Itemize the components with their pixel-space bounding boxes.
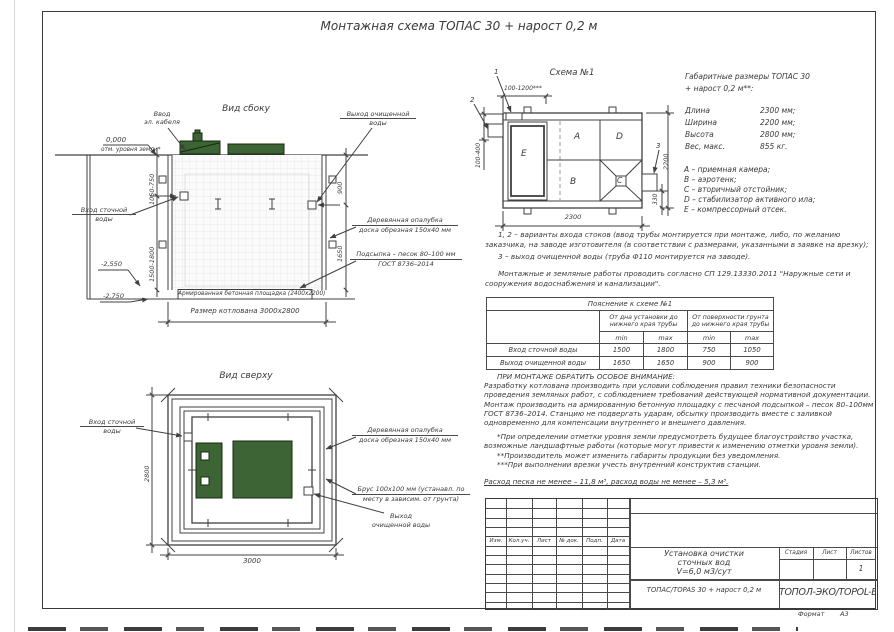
scheme1-diagram: [474, 76, 674, 231]
clamp: [329, 241, 336, 248]
table-group1: От дна установки до нижнего края трубы: [600, 311, 688, 332]
format-value: А3: [840, 611, 849, 618]
spec-label: Высота: [685, 131, 714, 140]
marker2-leader: [474, 104, 488, 129]
dim-900: 900: [337, 182, 344, 194]
ground-mark-note: отм. уровня земли*: [101, 147, 161, 154]
table-corner-cell: [487, 311, 600, 344]
top-view-diagram: [136, 387, 384, 560]
pit-size-label: Размер котлована 3000х2800: [150, 307, 340, 315]
table-min: min: [600, 332, 644, 344]
dim-2800: 2800: [144, 465, 151, 482]
dim-1050-750: 1050-750: [149, 174, 156, 205]
tb-sheets-label: Листов: [846, 548, 876, 559]
tb-company: ТОПОЛ-ЭКО/TOPOL-ECO: [779, 581, 876, 605]
latch: [201, 477, 209, 485]
clamp: [159, 241, 166, 248]
tb-hline: [486, 508, 629, 509]
legend-item: D – стабилизатор активного ила;: [684, 196, 815, 205]
table-cell: 750: [688, 344, 731, 357]
side-view-title: Вид сбоку: [196, 104, 296, 114]
table-min: min: [688, 332, 731, 344]
dim-2300: 2300: [545, 214, 601, 221]
outlet-pipe-3: [642, 174, 657, 191]
inlet-label-top: Вход сточной воды: [80, 418, 144, 435]
station-lids-top: [196, 441, 292, 498]
formwork-top-l2: доска обрезная 150х40 мм: [352, 436, 458, 445]
inlet-top-l1: Вход сточной: [80, 418, 144, 427]
marker1-leader: [497, 76, 511, 112]
outlet-label-side: Выход очищенной воды: [340, 110, 416, 127]
explanation-table: Пояснение к схеме №1 От дна установки до…: [486, 297, 774, 370]
beam-l1: Брус 100х100 мм (устанавл. по: [352, 485, 470, 495]
tb-col-koluch: Кол.уч.: [506, 537, 532, 546]
slab-label: Армированная бетонная площадка (2400х220…: [178, 290, 312, 299]
tb-hline: [629, 513, 877, 514]
table-group2: От поверхности грунта до нижнего края тр…: [688, 311, 774, 332]
table-max: max: [644, 332, 688, 344]
inlet-position-1: [506, 113, 522, 120]
spec-value: 2200 мм;: [760, 119, 795, 128]
inlet-stub-top: [184, 433, 192, 441]
bedding-label: Подсыпка – песок 80–100 мм ГОСТ 8736–201…: [350, 250, 462, 268]
spec-label: Длина: [685, 107, 710, 116]
table-cell: 900: [688, 357, 731, 370]
tb-hline: [486, 583, 629, 584]
cable-entry-label: Ввод эл. кабеля: [132, 110, 192, 126]
table-max: max: [731, 332, 774, 344]
formwork-l2: доска обрезная 150х40 мм: [352, 226, 458, 235]
tb-col-izm: Изм.: [486, 537, 506, 546]
legend-item: E – компрессорный отсек.: [684, 206, 787, 215]
scheme-title: Схема №1: [532, 69, 612, 79]
tb-hline: [486, 574, 629, 575]
tb-doc-l3: V=6,0 м3/сут: [629, 567, 779, 576]
specs-title-l2: + нарост 0,2 м**:: [685, 85, 753, 94]
vent-chimney: [193, 133, 202, 141]
tb-hline: [486, 546, 629, 547]
compartment-e-inner: [511, 126, 544, 196]
dim-2200: 2200: [663, 153, 670, 170]
tb-col-list: Лист: [532, 537, 556, 546]
formwork-top-l1: Деревянная опалубка: [352, 426, 458, 436]
outlet-stub: [308, 201, 316, 209]
station-lids: [180, 130, 284, 154]
tb-hline: [486, 602, 629, 603]
scheme-marker-1: 1: [494, 68, 498, 76]
lid-left-top: [196, 443, 222, 498]
table-cell: 1800: [644, 344, 688, 357]
cable-entry-l2: эл. кабеля: [132, 118, 192, 126]
pit-infill: [172, 155, 322, 290]
outlet-l2: воды: [340, 119, 416, 127]
dim-1500-1800: 1500-1800: [149, 247, 156, 282]
tb-hline: [486, 592, 629, 593]
bedding-l1: Подсыпка – песок 80–100 мм: [350, 250, 462, 260]
compartment-c: C: [617, 177, 622, 186]
inlet-label-side: Вход сточной воды: [72, 206, 136, 223]
tb-hline: [486, 518, 629, 519]
outlet-top-l1: Выход: [368, 512, 434, 521]
spec-value: 2300 мм;: [760, 107, 795, 116]
table-cell: 1650: [644, 357, 688, 370]
outlet-l1: Выход очищенной: [340, 110, 416, 119]
formwork-l1: Деревянная опалубка: [352, 216, 458, 226]
tb-doc-l1: Установка очистки: [629, 549, 779, 558]
note-2: 3 – выход очищенной воды (труба Ф110 мон…: [498, 253, 750, 261]
tb-hline: [486, 527, 629, 528]
compartment-b: B: [570, 177, 576, 187]
note-3: Монтажные и земляные работы проводить со…: [485, 269, 877, 288]
spec-label: Ширина: [685, 119, 717, 128]
outlet-stub-top: [304, 487, 313, 495]
attention-footnote-3: ***При выполнении врезки учесть внутренн…: [497, 461, 761, 469]
bedding-l2: ГОСТ 8736–2014: [350, 260, 462, 269]
compartment-d: D: [616, 132, 623, 142]
scheme-marker-2: 2: [470, 96, 474, 104]
format-label: Формат: [798, 611, 824, 618]
legend-item: A – приемная камера;: [684, 166, 770, 175]
lid-right: [228, 144, 284, 154]
legend-item: B – аэротенк;: [684, 176, 737, 185]
outlet-label-top: Выход очищенной воды: [368, 512, 434, 529]
tb-col-podp: Подп.: [582, 537, 607, 546]
attention-body: Разработку котлована производить при усл…: [484, 381, 880, 427]
scheme-marker-3: 3: [656, 142, 660, 150]
compartment-e: E: [521, 149, 527, 159]
dim-100-400: 100-400: [476, 143, 483, 168]
spec-value: 855 кг.: [760, 143, 788, 152]
outlet-leader: [317, 128, 372, 202]
beam-label: Брус 100х100 мм (устанавл. по месту в за…: [352, 485, 470, 503]
table-row-label: Выход очищенной воды: [487, 357, 600, 370]
tb-col-data: Дата: [607, 537, 629, 546]
inlet-l2: воды: [72, 215, 136, 223]
dim-1650: 1650: [337, 245, 344, 262]
clamp: [159, 176, 166, 183]
formwork-label-side: Деревянная опалубка доска обрезная 150х4…: [352, 216, 458, 234]
outlet-top-l2: очищенной воды: [368, 521, 434, 530]
formwork-label-top: Деревянная опалубка доска обрезная 150х4…: [352, 426, 458, 444]
tb-hline: [486, 564, 629, 565]
table-cell: 1500: [600, 344, 644, 357]
inlet-top-l2: воды: [80, 427, 144, 435]
marker3-leader: [654, 150, 659, 173]
dim-3000: 3000: [225, 557, 279, 565]
tb-sheets-value: 1: [846, 560, 876, 578]
tb-col-ndok: № док.: [556, 537, 582, 546]
table-cell: 900: [731, 357, 774, 370]
dim-100-1200: 100-1200***: [504, 86, 542, 93]
vent-cap: [195, 130, 200, 133]
spec-value: 2800 мм;: [760, 131, 795, 140]
level-minus-2750: -2,750: [103, 293, 124, 300]
tb-stage-label: Стадия: [779, 548, 813, 559]
tb-product: ТОПАС/TOPAS 30 + нарост 0,2 м: [629, 585, 779, 595]
drawing-sheet: Монтажная схема ТОПАС 30 + нарост 0,2 м: [0, 0, 894, 632]
cable-entry-l1: Ввод: [132, 110, 192, 118]
attention-footnote-1: *При определении отметки уровня земли пр…: [484, 432, 880, 451]
compartment-e-box: [508, 122, 547, 200]
tb-hline: [486, 555, 629, 556]
specs-title-l1: Габаритные размеры ТОПАС 30: [685, 73, 810, 82]
lid-right-top: [233, 441, 292, 498]
tb-doc-l2: сточных вод: [629, 558, 779, 567]
tb-sheet-label: Лист: [813, 548, 846, 559]
legend-item: C – вторичный отстойник;: [684, 186, 787, 195]
spec-label: Вес, макс.: [685, 143, 725, 152]
beam-l2: месту в зависим. от грунта): [352, 495, 470, 504]
latch: [201, 452, 209, 460]
inlet-stub: [180, 192, 188, 200]
inlet-l1: Вход сточной: [72, 206, 136, 215]
table-title: Пояснение к схеме №1: [487, 298, 774, 311]
compartment-a: A: [574, 132, 580, 142]
table-cell: 1050: [731, 344, 774, 357]
level-minus-2550: -2,550: [101, 261, 122, 268]
table-row-label: Вход сточной воды: [487, 344, 600, 357]
consumption-note: Расход песка не менее – 11,8 м³, расход …: [484, 478, 728, 486]
dim-330: 330: [653, 194, 660, 205]
top-view-title: Вид сверху: [196, 371, 296, 381]
cable-leader: [168, 128, 185, 150]
title-block: Изм. Кол.уч. Лист № док. Подп. Дата Уста…: [485, 498, 878, 610]
table-cell: 1650: [600, 357, 644, 370]
level-slab-leader: [128, 270, 140, 286]
ground-mark: 0,000: [106, 136, 126, 144]
note-1: 1, 2 – варианты входа стоков (ввод трубы…: [485, 230, 877, 249]
inlet-pipe-2: [488, 124, 503, 137]
